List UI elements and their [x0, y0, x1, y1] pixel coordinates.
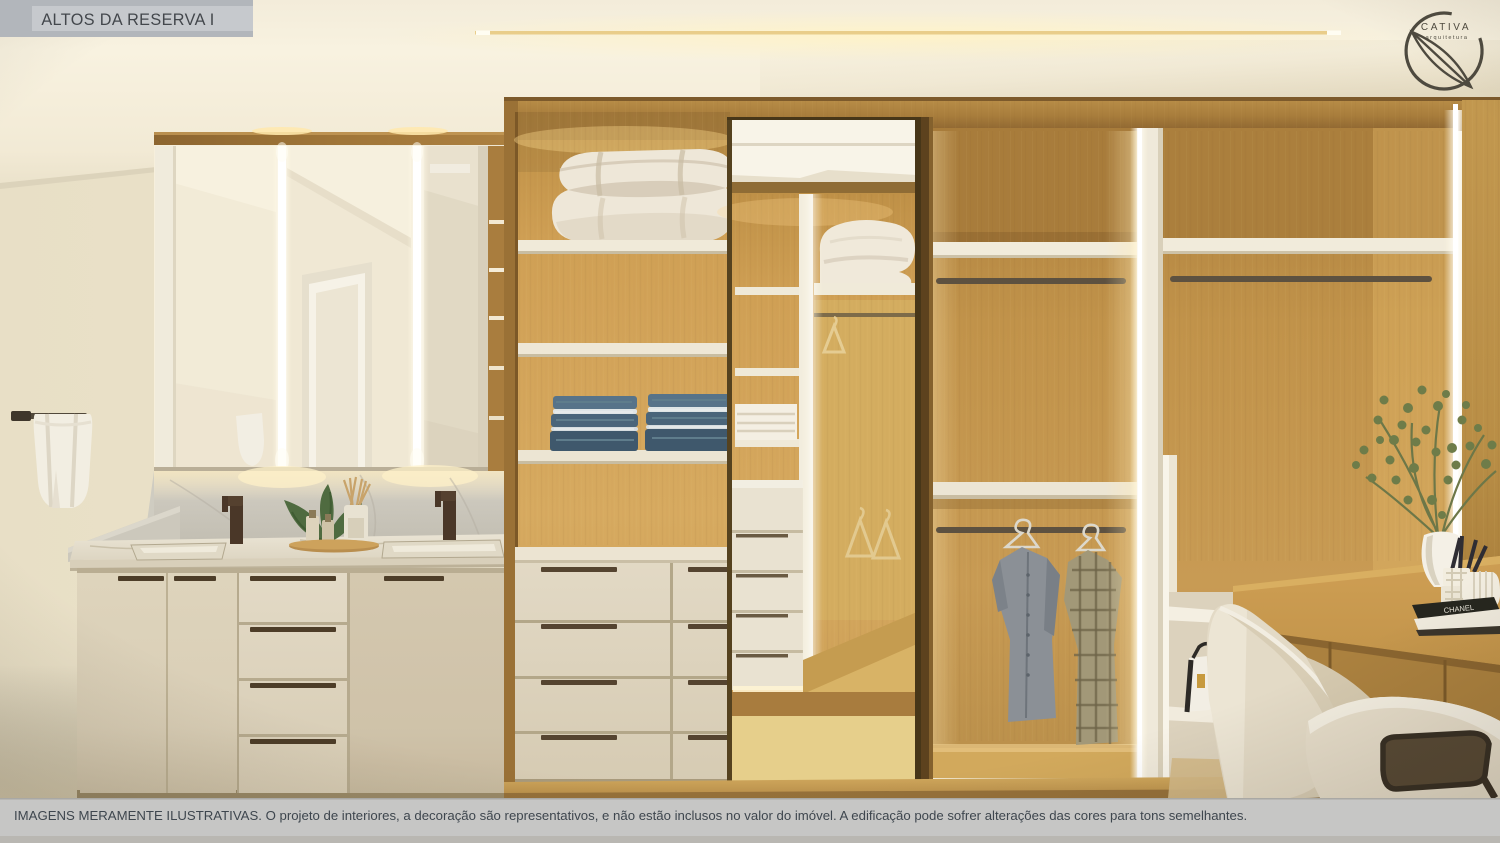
svg-text:CATIVA: CATIVA: [1421, 22, 1471, 33]
svg-text:arquitetura: arquitetura: [1426, 35, 1469, 41]
svg-text:IMAGENS MERAMENTE ILUSTRATIVAS: IMAGENS MERAMENTE ILUSTRATIVAS. O projet…: [14, 808, 1247, 823]
svg-text:ALTOS DA RESERVA I: ALTOS DA RESERVA I: [41, 11, 214, 29]
